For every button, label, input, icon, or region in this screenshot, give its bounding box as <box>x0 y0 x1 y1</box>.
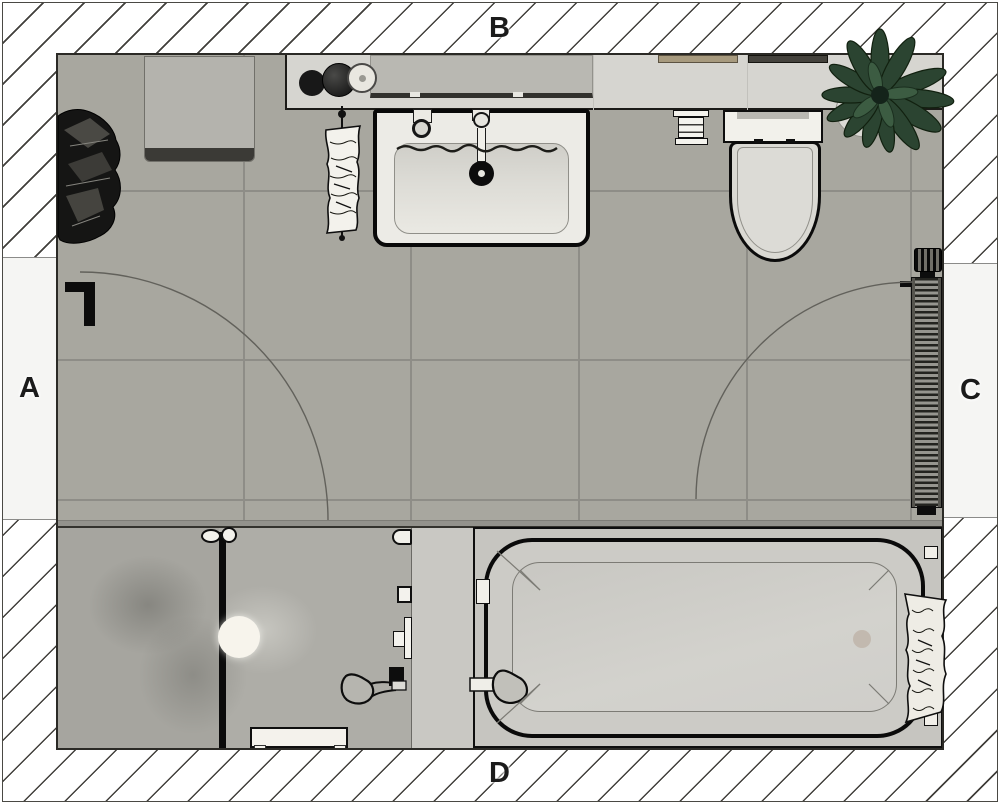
radiator <box>911 277 942 508</box>
door-handle <box>84 286 95 326</box>
bath-soap-dish <box>476 579 490 604</box>
tile-grout-line <box>58 359 942 361</box>
radiator-foot <box>917 506 936 515</box>
shower-divider-wall <box>411 528 473 748</box>
dark-tray <box>748 55 828 63</box>
shower-shelf-fixture <box>392 529 412 545</box>
room-floor <box>56 53 944 750</box>
wall-label-d: D <box>489 757 510 790</box>
mirror-cabinet-hinge <box>513 92 523 97</box>
bathtub-fitting <box>924 546 938 559</box>
shower-mixer-plate <box>404 617 412 659</box>
wall-label-c: C <box>960 374 981 407</box>
soap-dispenser <box>299 70 325 96</box>
counter-joint <box>747 55 748 110</box>
tap-handle <box>412 119 431 138</box>
toilet-cistern-inset <box>737 112 809 119</box>
door-opening-c: C <box>944 263 997 518</box>
bathtub-drain <box>853 630 871 648</box>
storage-cabinet-front <box>145 148 254 161</box>
wall-label-a: A <box>19 372 40 405</box>
toilet-paper-holder <box>673 110 709 117</box>
tile-grout-line <box>58 499 942 501</box>
counter-joint <box>593 55 594 110</box>
toilet-seat <box>737 147 813 253</box>
faucet-head <box>473 112 490 128</box>
toilet-paper-roll <box>678 117 704 138</box>
washbasin-drain-dot <box>478 170 485 177</box>
toilet-seat-hinge <box>754 139 763 143</box>
bathtub-fitting <box>924 713 938 726</box>
shower-glass-hinge <box>201 529 221 543</box>
wooden-tray <box>658 55 738 63</box>
bathroom-floor-plan: A C B D <box>0 0 1000 804</box>
shower-soap-dish <box>397 586 412 603</box>
faucet-spout <box>477 128 486 162</box>
radiator-valve <box>914 248 942 272</box>
toilet-paper-holder <box>675 138 708 145</box>
shower-head <box>218 616 260 658</box>
toilet-seat-hinge <box>786 139 795 143</box>
storage-cabinet <box>144 56 255 162</box>
wall-label-b: B <box>489 12 510 45</box>
mirror-cabinet-hinge <box>410 92 420 97</box>
bathtub-basin <box>512 562 897 712</box>
door-opening-a: A <box>3 257 56 520</box>
shower-glass-hinge <box>221 527 237 543</box>
shower-bench-leg <box>334 745 346 749</box>
shower-mixer-knob <box>393 631 405 647</box>
shower-bench-leg <box>254 745 266 749</box>
mirror-cabinet <box>370 55 593 98</box>
tumbler-cup-dot <box>359 75 366 82</box>
hand-shower-bracket <box>389 667 404 686</box>
